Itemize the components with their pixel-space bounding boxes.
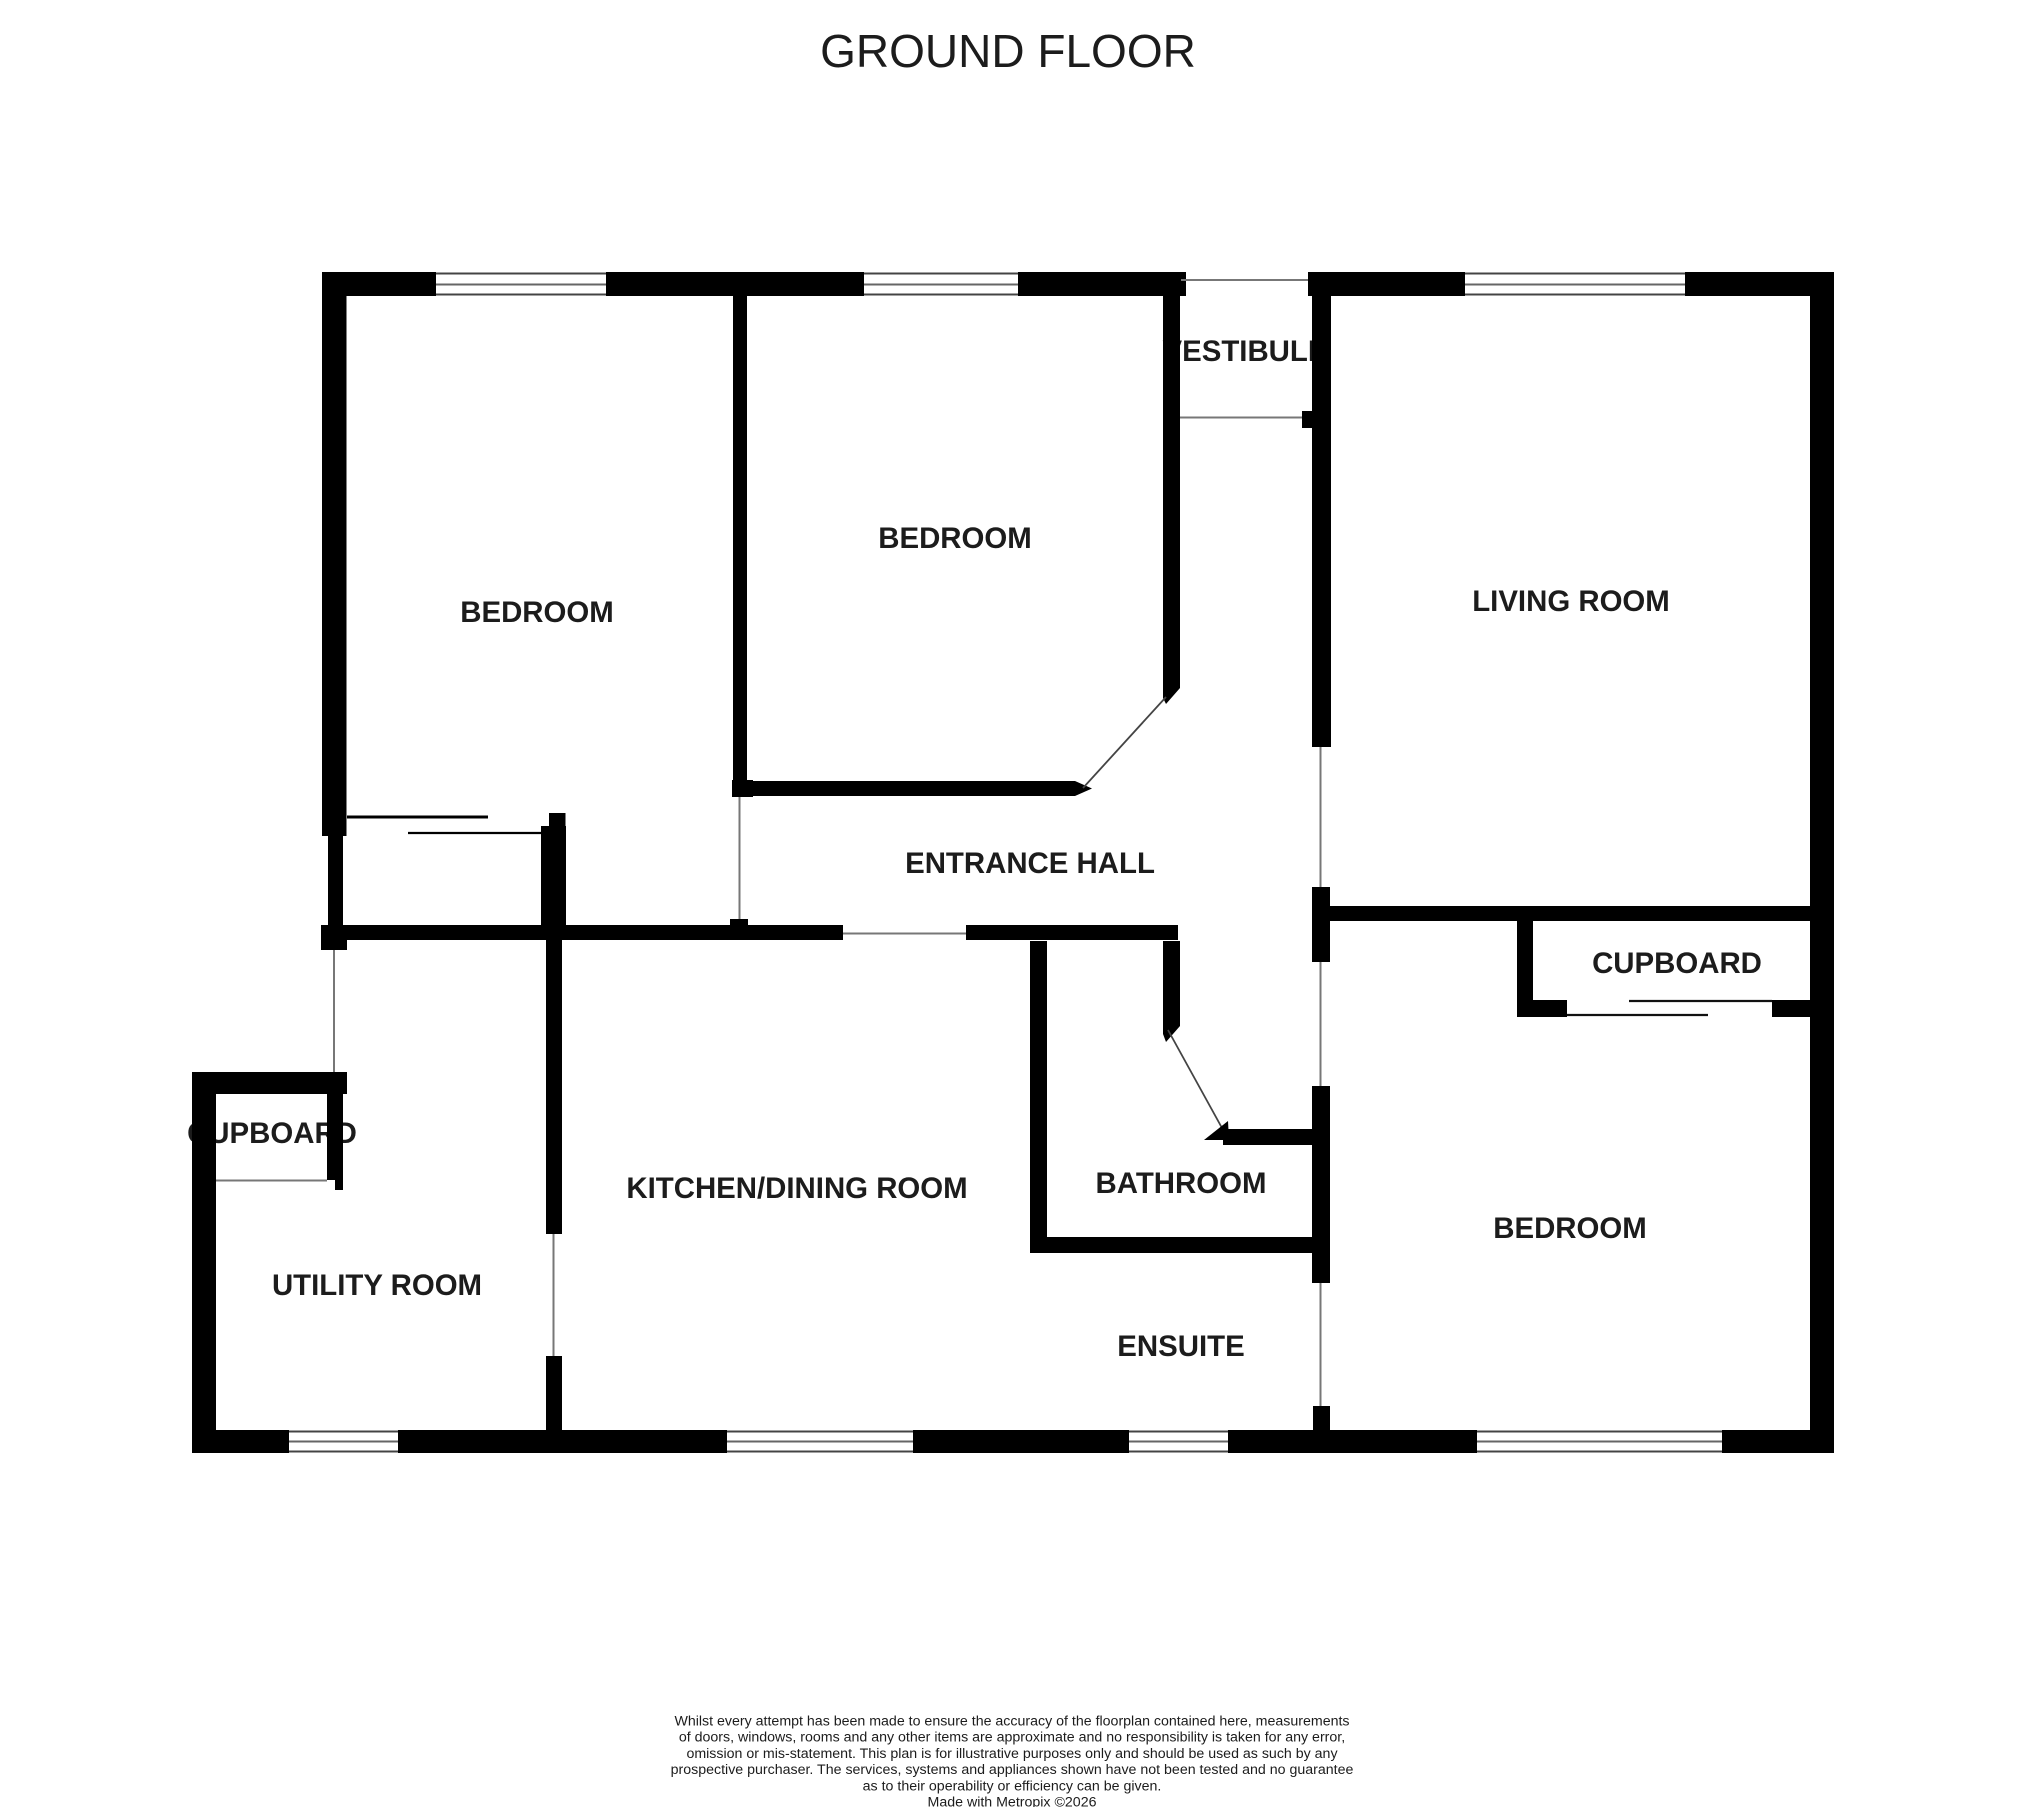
svg-text:as to their operability or eff: as to their operability or efficiency ca… <box>863 1778 1162 1794</box>
svg-text:VESTIBULE: VESTIBULE <box>1163 335 1328 368</box>
svg-text:LIVING ROOM: LIVING ROOM <box>1472 585 1670 618</box>
svg-text:ENTRANCE HALL: ENTRANCE HALL <box>905 847 1155 880</box>
svg-text:of doors, windows, rooms and a: of doors, windows, rooms and any other i… <box>679 1730 1345 1746</box>
svg-text:CUPBOARD: CUPBOARD <box>1592 947 1762 980</box>
svg-text:BEDROOM: BEDROOM <box>1493 1212 1646 1245</box>
svg-text:omission or mis-statement. Thi: omission or mis-statement. This plan is … <box>686 1746 1338 1762</box>
svg-text:UTILITY ROOM: UTILITY ROOM <box>272 1269 482 1302</box>
svg-text:prospective purchaser. The ser: prospective purchaser. The services, sys… <box>671 1762 1354 1778</box>
svg-text:GROUND FLOOR: GROUND FLOOR <box>820 25 1196 77</box>
svg-text:BEDROOM: BEDROOM <box>878 522 1031 555</box>
svg-text:KITCHEN/DINING ROOM: KITCHEN/DINING ROOM <box>626 1172 967 1205</box>
svg-text:Made with Metropix ©2026: Made with Metropix ©2026 <box>928 1795 1097 1807</box>
svg-text:BATHROOM: BATHROOM <box>1096 1167 1267 1200</box>
svg-text:ENSUITE: ENSUITE <box>1117 1330 1244 1363</box>
svg-text:BEDROOM: BEDROOM <box>460 596 613 629</box>
svg-text:Whilst every attempt has been: Whilst every attempt has been made to en… <box>674 1714 1349 1730</box>
